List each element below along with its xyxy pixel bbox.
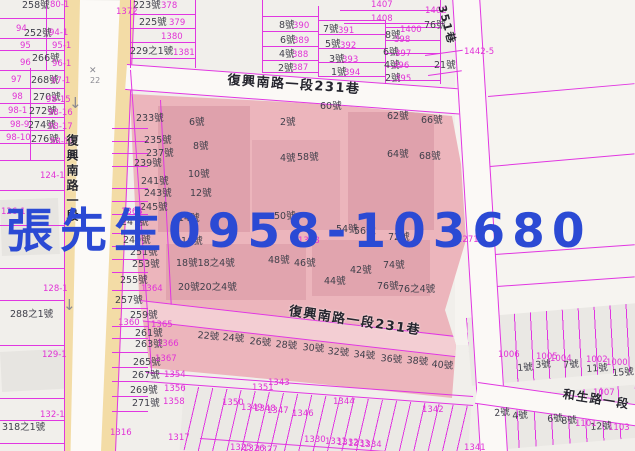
- lot-number-label: 98-10: [6, 134, 31, 143]
- lot-number-label: 98: [12, 93, 23, 102]
- lot-number-label: 96-1: [52, 60, 71, 69]
- house-number-label: 76之4號: [398, 285, 435, 295]
- house-number-label: 68號: [419, 152, 441, 162]
- house-number-label: 36號: [380, 354, 402, 365]
- lot-number-label: 391: [338, 27, 354, 36]
- lot-number-label: 390: [293, 22, 309, 31]
- lot-number-label: 389: [293, 37, 309, 46]
- lot-number-label: 1367: [155, 355, 177, 364]
- house-number-label: 318之1號: [2, 423, 45, 433]
- house-number-label: 44號: [324, 277, 346, 287]
- house-number-label: 10號: [188, 170, 210, 180]
- lot-number-label: 1002: [586, 356, 608, 365]
- lot-number-label: 1366: [157, 340, 179, 349]
- house-number-label: 233號: [136, 114, 164, 124]
- house-number-label: 62號: [387, 112, 409, 122]
- contact-overlay-text: 張先生0958-103680: [6, 192, 592, 261]
- house-number-label: 5號: [325, 40, 341, 50]
- lot-number-label: 1346: [292, 410, 314, 419]
- lot-number-label: 1364: [141, 285, 163, 294]
- lot-number-label: 396: [393, 62, 409, 71]
- house-number-label: 267號: [132, 371, 160, 381]
- lot-number-label: 98-1: [8, 107, 27, 116]
- lot-number-label: 398: [394, 36, 410, 45]
- house-number-label: 235號: [144, 136, 172, 146]
- house-number-label: 2號: [280, 118, 296, 128]
- lot-number-label: 378: [161, 2, 177, 11]
- house-number-label: 58號: [297, 153, 319, 163]
- road-symbol: ↓: [63, 298, 76, 313]
- house-number-label: 15號: [612, 367, 634, 378]
- house-number-label: 225號: [139, 18, 167, 28]
- road-symbol: 22: [90, 77, 100, 85]
- house-number-label: 74號: [383, 261, 405, 271]
- house-number-label: 253號: [132, 260, 160, 270]
- lot-number-label: 80-1: [50, 1, 69, 10]
- lot-number-label: 1330: [304, 436, 326, 445]
- lot-number-label: 98-17: [48, 123, 73, 132]
- lot-number-label: 1408: [371, 15, 393, 24]
- house-number-label: 66號: [421, 116, 443, 126]
- house-number-label: 42號: [350, 266, 372, 276]
- house-number-label: 32號: [327, 347, 349, 358]
- house-number-label: 30號: [302, 343, 324, 354]
- lot-number-label: 397: [395, 50, 411, 59]
- house-number-label: 257號: [115, 296, 143, 306]
- lot-number-label: 1327: [256, 446, 278, 451]
- lot-number-label: 393: [342, 56, 358, 65]
- house-number-label: 40號: [431, 360, 453, 371]
- lot-number-label: 1342: [422, 406, 444, 415]
- lot-number-label: 1372: [116, 8, 138, 17]
- lot-number-label: 379: [169, 19, 185, 28]
- house-number-label: 1號: [517, 363, 533, 374]
- house-number-label: 38號: [406, 356, 428, 367]
- house-number-label: 241號: [141, 177, 169, 187]
- house-number-label: 26號: [249, 337, 271, 348]
- house-number-label: 288之1號: [10, 310, 53, 320]
- lot-number-label: 1381: [173, 49, 195, 58]
- house-number-label: 261號: [135, 329, 163, 339]
- road-symbol: ✕: [89, 67, 97, 76]
- lot-number-label: 1380: [161, 33, 183, 42]
- lot-number-label: 95: [20, 42, 31, 51]
- lot-number-label: 1356: [164, 385, 186, 394]
- lot-number-label: 1317: [168, 434, 190, 443]
- lot-number-label: 97-1: [51, 77, 70, 86]
- house-number-label: 258號: [22, 1, 50, 11]
- street-name-label: 351巷: [436, 4, 457, 45]
- house-number-label: 11號: [586, 363, 608, 374]
- lot-number-label: 1407: [371, 1, 393, 10]
- lot-number-label: 1351: [252, 384, 274, 393]
- lot-number-label: 124-1: [40, 172, 65, 181]
- house-number-label: 28號: [275, 340, 297, 351]
- lot-number-label: 395: [395, 75, 411, 84]
- lot-number-label: 94-1: [49, 29, 68, 38]
- street-name-label: 和生路一段: [562, 388, 631, 410]
- lot-number-label: 1103: [608, 424, 630, 433]
- house-number-label: 8號: [193, 142, 209, 152]
- lot-number-label: 128-1: [43, 285, 68, 294]
- house-number-label: 34號: [353, 350, 375, 361]
- house-number-label: 6號: [189, 118, 205, 128]
- lot-number-label: 388: [292, 51, 308, 60]
- lot-number-label: 132-1: [40, 411, 65, 420]
- lot-number-label: 1365: [151, 321, 173, 330]
- house-number-label: 229之1號: [130, 47, 173, 57]
- lot-number-label: 129-1: [42, 351, 67, 360]
- house-number-label: 269號: [130, 386, 158, 396]
- house-number-label: 271號: [132, 399, 160, 409]
- lot-number-label: 96: [20, 59, 31, 68]
- house-number-label: 4號: [280, 154, 296, 164]
- house-number-label: 239號: [134, 159, 162, 169]
- lot-number-label: 98-15: [46, 96, 71, 105]
- house-number-label: 60號: [320, 102, 342, 112]
- house-number-label: 24號: [222, 333, 244, 344]
- lot-number-label: 1354: [164, 371, 186, 380]
- street-name-label: 復興南路一段231巷: [288, 305, 422, 338]
- lot-number-label: 97: [11, 76, 22, 85]
- house-number-label: 252號: [24, 29, 52, 39]
- house-number-label: 2號: [494, 408, 510, 419]
- lot-number-label: 1442-5: [464, 48, 494, 57]
- lot-number-label: 1004: [550, 355, 572, 364]
- lot-number-label: 1000: [606, 359, 628, 368]
- lot-number-label: 1316: [110, 429, 132, 438]
- lot-number-label: 95-1: [52, 42, 71, 51]
- lot-number-label: 94: [16, 25, 27, 34]
- lot-number-label: 1101: [575, 420, 597, 429]
- house-number-label: 76號: [377, 282, 399, 292]
- house-number-label: 20號20之4號: [178, 283, 237, 293]
- lot-number-label: 1360: [118, 319, 140, 328]
- house-number-label: 21號: [434, 61, 456, 71]
- cadastral-map[interactable]: 258號252號266號268號270號272號274號276號288之1號31…: [0, 0, 635, 451]
- lot-number-label: 1344: [333, 398, 355, 407]
- lot-number-label: 1358: [163, 398, 185, 407]
- house-number-label: 22號: [197, 331, 219, 342]
- house-number-label: 4號: [512, 411, 528, 422]
- lot-number-label: 1334: [360, 441, 382, 450]
- lot-number-label: 98-9: [10, 121, 29, 130]
- lot-number-label: 394: [344, 69, 360, 78]
- road-symbol: ↓: [69, 96, 82, 111]
- lot-number-label: 392: [340, 42, 356, 51]
- lot-number-label: 1400: [400, 26, 422, 35]
- lot-number-label: 387: [292, 64, 308, 73]
- house-number-label: 7號: [323, 25, 339, 35]
- lot-number-label: 1341: [464, 444, 486, 451]
- house-number-label: 64號: [387, 150, 409, 160]
- lot-number-label: 1006: [498, 351, 520, 360]
- lot-number-label: 1347: [267, 407, 289, 416]
